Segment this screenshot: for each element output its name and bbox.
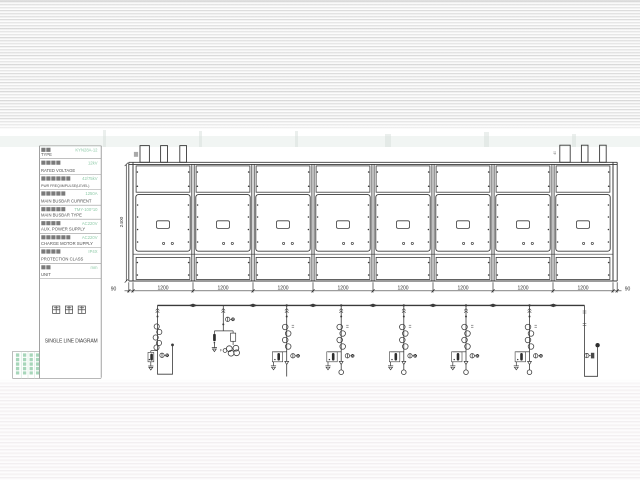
svg-text:MAIN BUSBAR CURRENT: MAIN BUSBAR CURRENT (41, 199, 92, 204)
svg-text:TYPE: TYPE (41, 152, 52, 157)
svg-text:RATED VOLTAGE: RATED VOLTAGE (41, 168, 75, 173)
svg-text:1200: 1200 (277, 285, 288, 291)
svg-text:1200: 1200 (397, 285, 408, 291)
svg-text:SINGLE LINE DIAGRAM: SINGLE LINE DIAGRAM (45, 339, 98, 345)
svg-text:KYN28A-12: KYN28A-12 (75, 147, 98, 152)
svg-text:90: 90 (111, 287, 117, 293)
svg-text:1200: 1200 (457, 285, 468, 291)
svg-text:IP4X: IP4X (88, 249, 97, 254)
svg-text:1200: 1200 (337, 285, 348, 291)
svg-text:F: F (220, 348, 223, 352)
svg-text:1200: 1200 (217, 285, 228, 291)
svg-text:1200: 1200 (577, 285, 588, 291)
svg-text:MAIN BUSBAR TYPE: MAIN BUSBAR TYPE (41, 213, 82, 218)
svg-text:UNIT: UNIT (41, 272, 51, 277)
svg-text:42/75kV: 42/75kV (82, 176, 98, 181)
svg-text:1200: 1200 (157, 285, 168, 291)
svg-text:CHARGE MOTOR SUPPLY: CHARGE MOTOR SUPPLY (41, 241, 93, 246)
svg-text:40: 40 (553, 151, 557, 155)
svg-text:1250A: 1250A (85, 191, 97, 196)
svg-text:12kV: 12kV (88, 160, 98, 165)
svg-text:mm: mm (91, 265, 98, 270)
svg-text:1200: 1200 (517, 285, 528, 291)
svg-text:AUX. POWER SUPPLY: AUX. POWER SUPPLY (41, 227, 85, 232)
svg-text:AC220V: AC220V (82, 235, 98, 240)
svg-text:PROTECTION CLASS: PROTECTION CLASS (41, 257, 84, 262)
svg-text:AC220V: AC220V (82, 221, 98, 226)
svg-text:PWR FREQ/IMPULSE(LEVEL): PWR FREQ/IMPULSE(LEVEL) (41, 184, 89, 188)
svg-text:90: 90 (625, 287, 631, 293)
svg-text:2400: 2400 (119, 216, 125, 227)
svg-text:TMY-100*10: TMY-100*10 (74, 207, 98, 212)
